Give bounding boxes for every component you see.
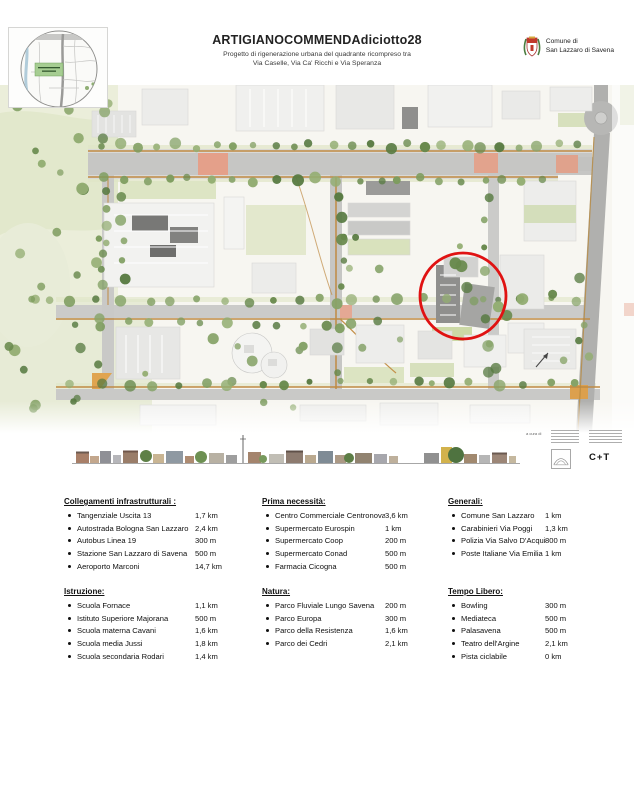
municipality-badge: Comune di San Lazzaro di Savena [523,36,614,58]
bullet-icon [452,514,455,517]
amenity-row: Teatro dell'Argine2,1 km [448,637,610,650]
bullet-icon [266,629,269,632]
amenity-label: Aeroporto Marconi [77,562,195,571]
amenity-label: Autostrada Bologna San Lazzaro [77,524,195,533]
bullet-icon [68,617,71,620]
credits-block: a cura di C+T [520,426,632,476]
locator-map-graphic [9,28,108,108]
bullet-icon [68,629,71,632]
amenity-distance: 1,8 km [195,639,218,648]
bullet-icon [68,539,71,542]
amenity-label: Supermercato Coop [275,536,385,545]
municipality-line1: Comune di [546,38,614,47]
bullet-icon [452,642,455,645]
section-title: Collegamenti infrastrutturali : [64,497,262,506]
amenity-distance: 500 m [195,614,216,623]
amenity-distance: 500 m [195,549,216,558]
amenity-row: Pista ciclabile0 km [448,650,610,663]
curated-by-label: a cura di [526,431,541,436]
amenity-label: Scuola media Jussi [77,639,195,648]
section-title: Istruzione: [64,587,262,596]
amenity-distance: 2,1 km [385,639,408,648]
amenity-label: Scuola materna Cavani [77,626,195,635]
amenity-distance: 800 m [545,536,566,545]
amenity-label: Supermercato Eurospin [275,524,385,533]
amenity-row: Tangenziale Uscita 131,7 km [64,509,262,522]
amenity-distance: 1,4 km [195,652,218,661]
bullet-icon [266,527,269,530]
amenity-row: Scuola Fornace1,1 km [64,599,262,612]
municipality-line2: San Lazzaro di Savena [546,47,614,56]
plan-sheet: ARTIGIANOCOMMENDAdiciotto28 Progetto di … [0,0,634,800]
studio-logo: C+T [589,452,610,463]
amenity-row: Supermercato Coop200 m [262,535,448,548]
bullet-icon [452,655,455,658]
bullet-icon [68,642,71,645]
amenity-row: Autobus Linea 19300 m [64,535,262,548]
section-collegamenti: Collegamenti infrastrutturali :Tangenzia… [64,497,262,573]
section-prima-necessita: Prima necessità:Centro Commerciale Centr… [262,497,448,573]
amenity-row: Aeroporto Marconi14,7 km [64,560,262,573]
amenity-row: Scuola materna Cavani1,6 km [64,625,262,638]
amenity-label: Farmacia Cicogna [275,562,385,571]
amenity-row: Parco Europa300 m [262,612,448,625]
bullet-icon [266,539,269,542]
amenity-row: Istituto Superiore Majorana500 m [64,612,262,625]
amenity-row: Centro Commerciale Centronova3,6 km [262,509,448,522]
amenity-label: Scuola secondaria Rodari [77,652,195,661]
amenity-distance: 200 m [385,536,406,545]
amenity-row: Supermercato Conad500 m [262,547,448,560]
elevation-buildings [76,435,516,463]
amenity-label: Centro Commerciale Centronova [275,511,385,520]
site-plan-map [0,85,634,433]
bullet-icon [452,552,455,555]
amenity-distance: 1,6 km [385,626,408,635]
amenity-row: Comune San Lazzaro1 km [448,509,610,522]
bullet-icon [68,527,71,530]
amenity-distance: 3,6 km [385,511,408,520]
amenity-label: Teatro dell'Argine [461,639,545,648]
amenity-distance: 1 km [385,524,401,533]
bullet-icon [452,617,455,620]
amenity-label: Autobus Linea 19 [77,536,195,545]
amenity-row: Scuola secondaria Rodari1,4 km [64,650,262,663]
bullet-icon [266,552,269,555]
amenity-label: Mediateca [461,614,545,623]
amenity-label: Pista ciclabile [461,652,545,661]
section-title: Tempo Libero: [448,587,610,596]
amenity-distance: 200 m [385,601,406,610]
amenity-distance: 1,7 km [195,511,218,520]
amenity-label: Carabinieri Via Poggi [461,524,545,533]
amenity-row: Parco dei Cedri2,1 km [262,637,448,650]
amenity-distance: 300 m [385,614,406,623]
amenity-row: Polizia Via Salvo D'Acquisto800 m [448,535,610,548]
amenity-label: Parco Europa [275,614,385,623]
bullet-icon [266,617,269,620]
section-title: Natura: [262,587,448,596]
amenity-row: Stazione San Lazzaro di Savena500 m [64,547,262,560]
bullet-icon [68,565,71,568]
amenity-row: Carabinieri Via Poggi1,3 km [448,522,610,535]
amenity-label: Stazione San Lazzaro di Savena [77,549,195,558]
amenities-grid: Collegamenti infrastrutturali :Tangenzia… [64,497,610,663]
amenity-row: Farmacia Cicogna500 m [262,560,448,573]
amenity-distance: 500 m [545,614,566,623]
amenity-distance: 2,1 km [545,639,568,648]
amenity-row: Autostrada Bologna San Lazzaro2,4 km [64,522,262,535]
amenity-label: Polizia Via Salvo D'Acquisto [461,536,545,545]
section-title: Generali: [448,497,610,506]
amenity-row: Mediateca500 m [448,612,610,625]
amenity-row: Scuola media Jussi1,8 km [64,637,262,650]
amenity-label: Supermercato Conad [275,549,385,558]
locator-map [8,27,108,108]
amenity-label: Bowling [461,601,545,610]
bullet-icon [266,604,269,607]
credit-text-illegible [589,430,622,445]
amenity-label: Parco dei Cedri [275,639,385,648]
amenity-label: Palasavena [461,626,545,635]
amenity-row: Supermercato Eurospin1 km [262,522,448,535]
bullet-icon [266,514,269,517]
bullet-icon [266,642,269,645]
credit-text-illegible [551,430,579,445]
amenity-distance: 1 km [545,549,561,558]
amenity-row: Parco della Resistenza1,6 km [262,625,448,638]
amenity-row: Poste Italiane Via Emilia1 km [448,547,610,560]
amenity-distance: 500 m [545,626,566,635]
coat-of-arms-icon [523,36,541,58]
bullet-icon [266,565,269,568]
amenity-label: Parco della Resistenza [275,626,385,635]
section-title: Prima necessità: [262,497,448,506]
amenity-distance: 1,1 km [195,601,218,610]
bullet-icon [452,539,455,542]
bullet-icon [68,655,71,658]
bullet-icon [68,552,71,555]
amenity-label: Comune San Lazzaro [461,511,545,520]
section-tempo-libero: Tempo Libero:Bowling300 mMediateca500 mP… [448,587,610,663]
amenity-distance: 500 m [385,549,406,558]
section-istruzione: Istruzione:Scuola Fornace1,1 kmIstituto … [64,587,262,663]
bullet-icon [452,527,455,530]
amenity-distance: 0 km [545,652,561,661]
amenity-label: Parco Fluviale Lungo Savena [275,601,385,610]
amenity-distance: 1,3 km [545,524,568,533]
bullet-icon [452,629,455,632]
section-natura: Natura:Parco Fluviale Lungo Savena200 mP… [262,587,448,663]
amenity-label: Poste Italiane Via Emilia [461,549,545,558]
amenity-distance: 1 km [545,511,561,520]
amenity-distance: 300 m [545,601,566,610]
bullet-icon [68,604,71,607]
amenity-distance: 14,7 km [195,562,222,571]
studio-sketch-logo [551,449,571,469]
amenity-row: Palasavena500 m [448,625,610,638]
amenity-row: Bowling300 m [448,599,610,612]
section-generali: Generali:Comune San Lazzaro1 kmCarabinie… [448,497,610,573]
amenity-label: Istituto Superiore Majorana [77,614,195,623]
amenity-row: Parco Fluviale Lungo Savena200 m [262,599,448,612]
amenity-label: Scuola Fornace [77,601,195,610]
amenity-distance: 1,6 km [195,626,218,635]
bullet-icon [68,514,71,517]
amenity-label: Tangenziale Uscita 13 [77,511,195,520]
amenity-distance: 500 m [385,562,406,571]
amenity-distance: 2,4 km [195,524,218,533]
bullet-icon [452,604,455,607]
amenity-distance: 300 m [195,536,216,545]
